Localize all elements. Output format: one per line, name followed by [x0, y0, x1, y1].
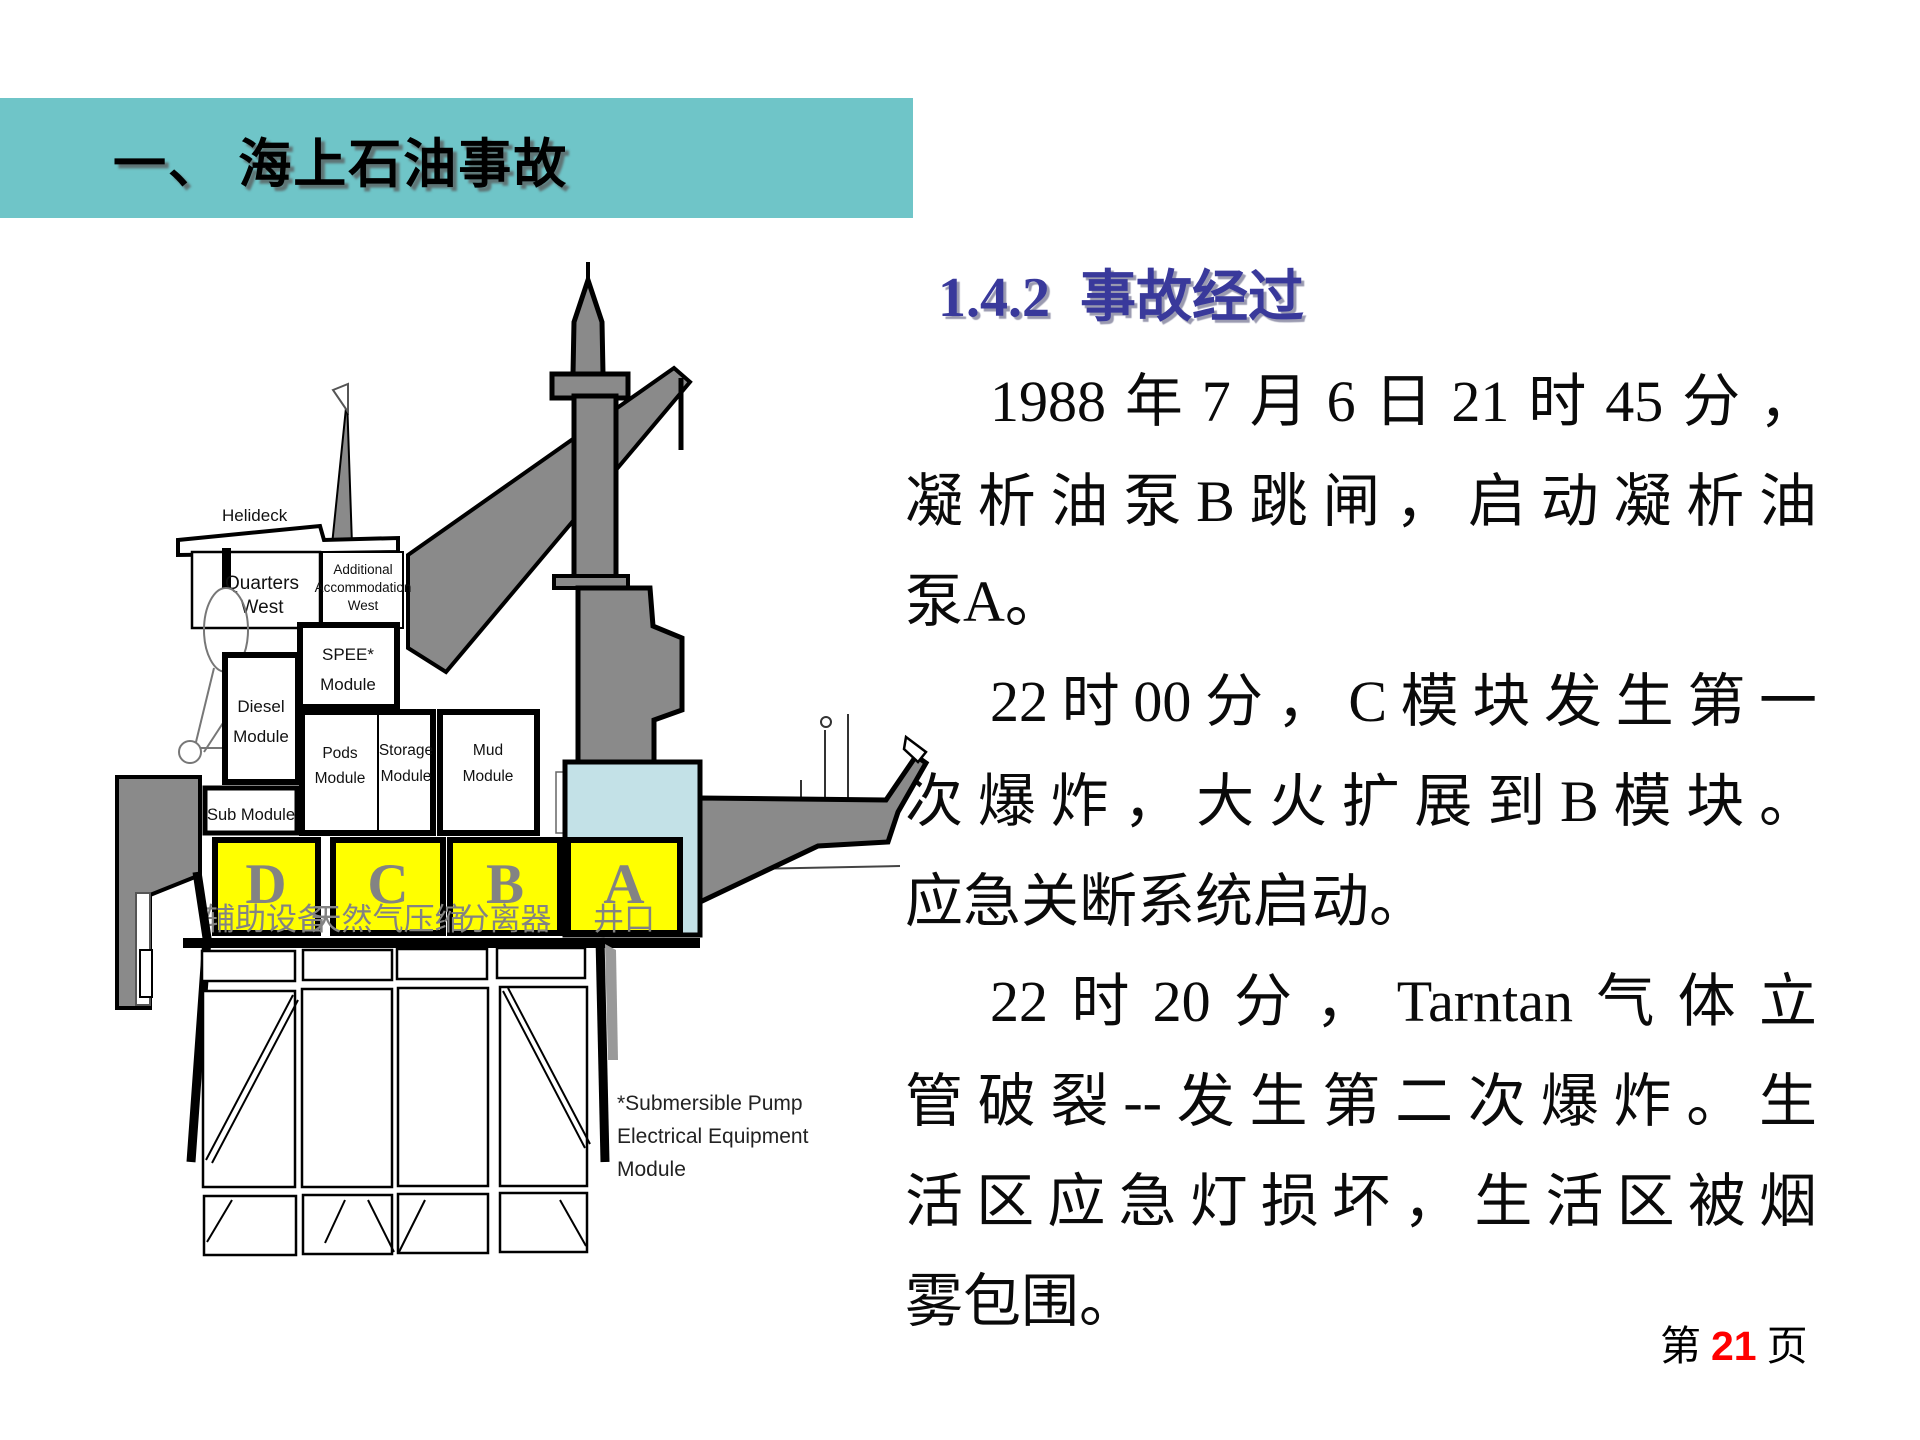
spee-label: Module [320, 675, 376, 694]
body-line: 泵A。 [905, 552, 1817, 652]
mast-flag [332, 384, 352, 545]
left-flare-support [117, 777, 200, 1008]
submersible-note-line: Module [617, 1158, 686, 1181]
submersible-note-line: *Submersible Pump [617, 1092, 803, 1115]
quarters-west-label: Quarters [225, 573, 299, 594]
diesel-module: Diesel Module [225, 655, 298, 782]
spee-label: SPEE* [322, 645, 374, 664]
section-heading: 1.4.2事故经过 [938, 252, 1304, 333]
page-number: 21 [1711, 1323, 1757, 1369]
submersible-note: *Submersible Pump Electrical Equipment M… [617, 1092, 809, 1181]
slide: { "banner": { "title": "一、 海上石油事故", "bg_… [0, 0, 1920, 1440]
additional-accommodation-label: Accommodation [315, 580, 412, 595]
mud-label: Module [463, 768, 514, 785]
storage-label: Module [381, 768, 432, 785]
module-row: D C B A 辅助设备 天然气压缩 分离器 井口 [204, 840, 680, 937]
pods-storage-module: Pods Module Storage Module [302, 712, 433, 833]
mud-module: Mud Module [440, 712, 537, 833]
page-prefix: 第 [1660, 1323, 1701, 1369]
body-line: 次爆炸，大火扩展到B模块。 [905, 752, 1817, 852]
spee-module: SPEE* Module [300, 625, 397, 707]
module-a-label: 井口 [593, 902, 655, 937]
body-line: 22时20分，Tarntan气体立 [905, 952, 1817, 1052]
sub-label: Sub Module [207, 806, 295, 824]
mud-label: Mud [473, 742, 503, 759]
title-banner: 一、 海上石油事故 [0, 98, 913, 218]
quarters-west-module: Quarters West [192, 548, 320, 628]
derrick-tower [552, 262, 682, 764]
module-d-label: 辅助设备 [204, 902, 328, 937]
body-line: 应急关断系统启动。 [905, 852, 1817, 952]
module-c-label: 天然气压缩 [311, 902, 466, 937]
flare-boom [700, 714, 926, 902]
body-line: 凝析油泵B跳闸，启动凝析油 [905, 452, 1817, 552]
body-line: 22时00分，C模块发生第一 [905, 652, 1817, 752]
page-suffix: 页 [1767, 1323, 1808, 1369]
additional-accommodation-label: Additional [333, 562, 392, 577]
body-line: 1988年7月6日21时45分， [905, 352, 1817, 452]
body-line: 活区应急灯损坏，生活区被烟 [905, 1152, 1817, 1252]
storage-label: Storage [379, 742, 433, 759]
diesel-label: Diesel [237, 697, 284, 716]
helideck: Helideck [178, 506, 398, 555]
section-title: 事故经过 [1080, 267, 1304, 329]
platform-diagram: Helideck Quarters West Additional Accomm… [85, 250, 965, 1270]
additional-accommodation-module: Additional Accommodation West [315, 552, 412, 628]
pods-label: Pods [322, 745, 358, 762]
submersible-note-line: Electrical Equipment [617, 1125, 809, 1148]
slide-title: 一、 海上石油事故 [113, 122, 568, 198]
page-footer: 第21页 [1660, 1312, 1808, 1372]
diesel-label: Module [233, 727, 289, 746]
additional-accommodation-label: West [348, 598, 379, 613]
platform-diagram-svg: Helideck Quarters West Additional Accomm… [85, 250, 965, 1270]
body-text: 1988年7月6日21时45分， 凝析油泵B跳闸，启动凝析油 泵A。 22时00… [905, 352, 1817, 1352]
pods-label: Module [315, 770, 366, 787]
sub-module: Sub Module [205, 788, 297, 833]
body-line: 管破裂--发生第二次爆炸。生 [905, 1052, 1817, 1152]
helideck-label: Helideck [222, 506, 288, 525]
deck-band [183, 938, 700, 948]
module-b-label: 分离器 [459, 902, 552, 937]
